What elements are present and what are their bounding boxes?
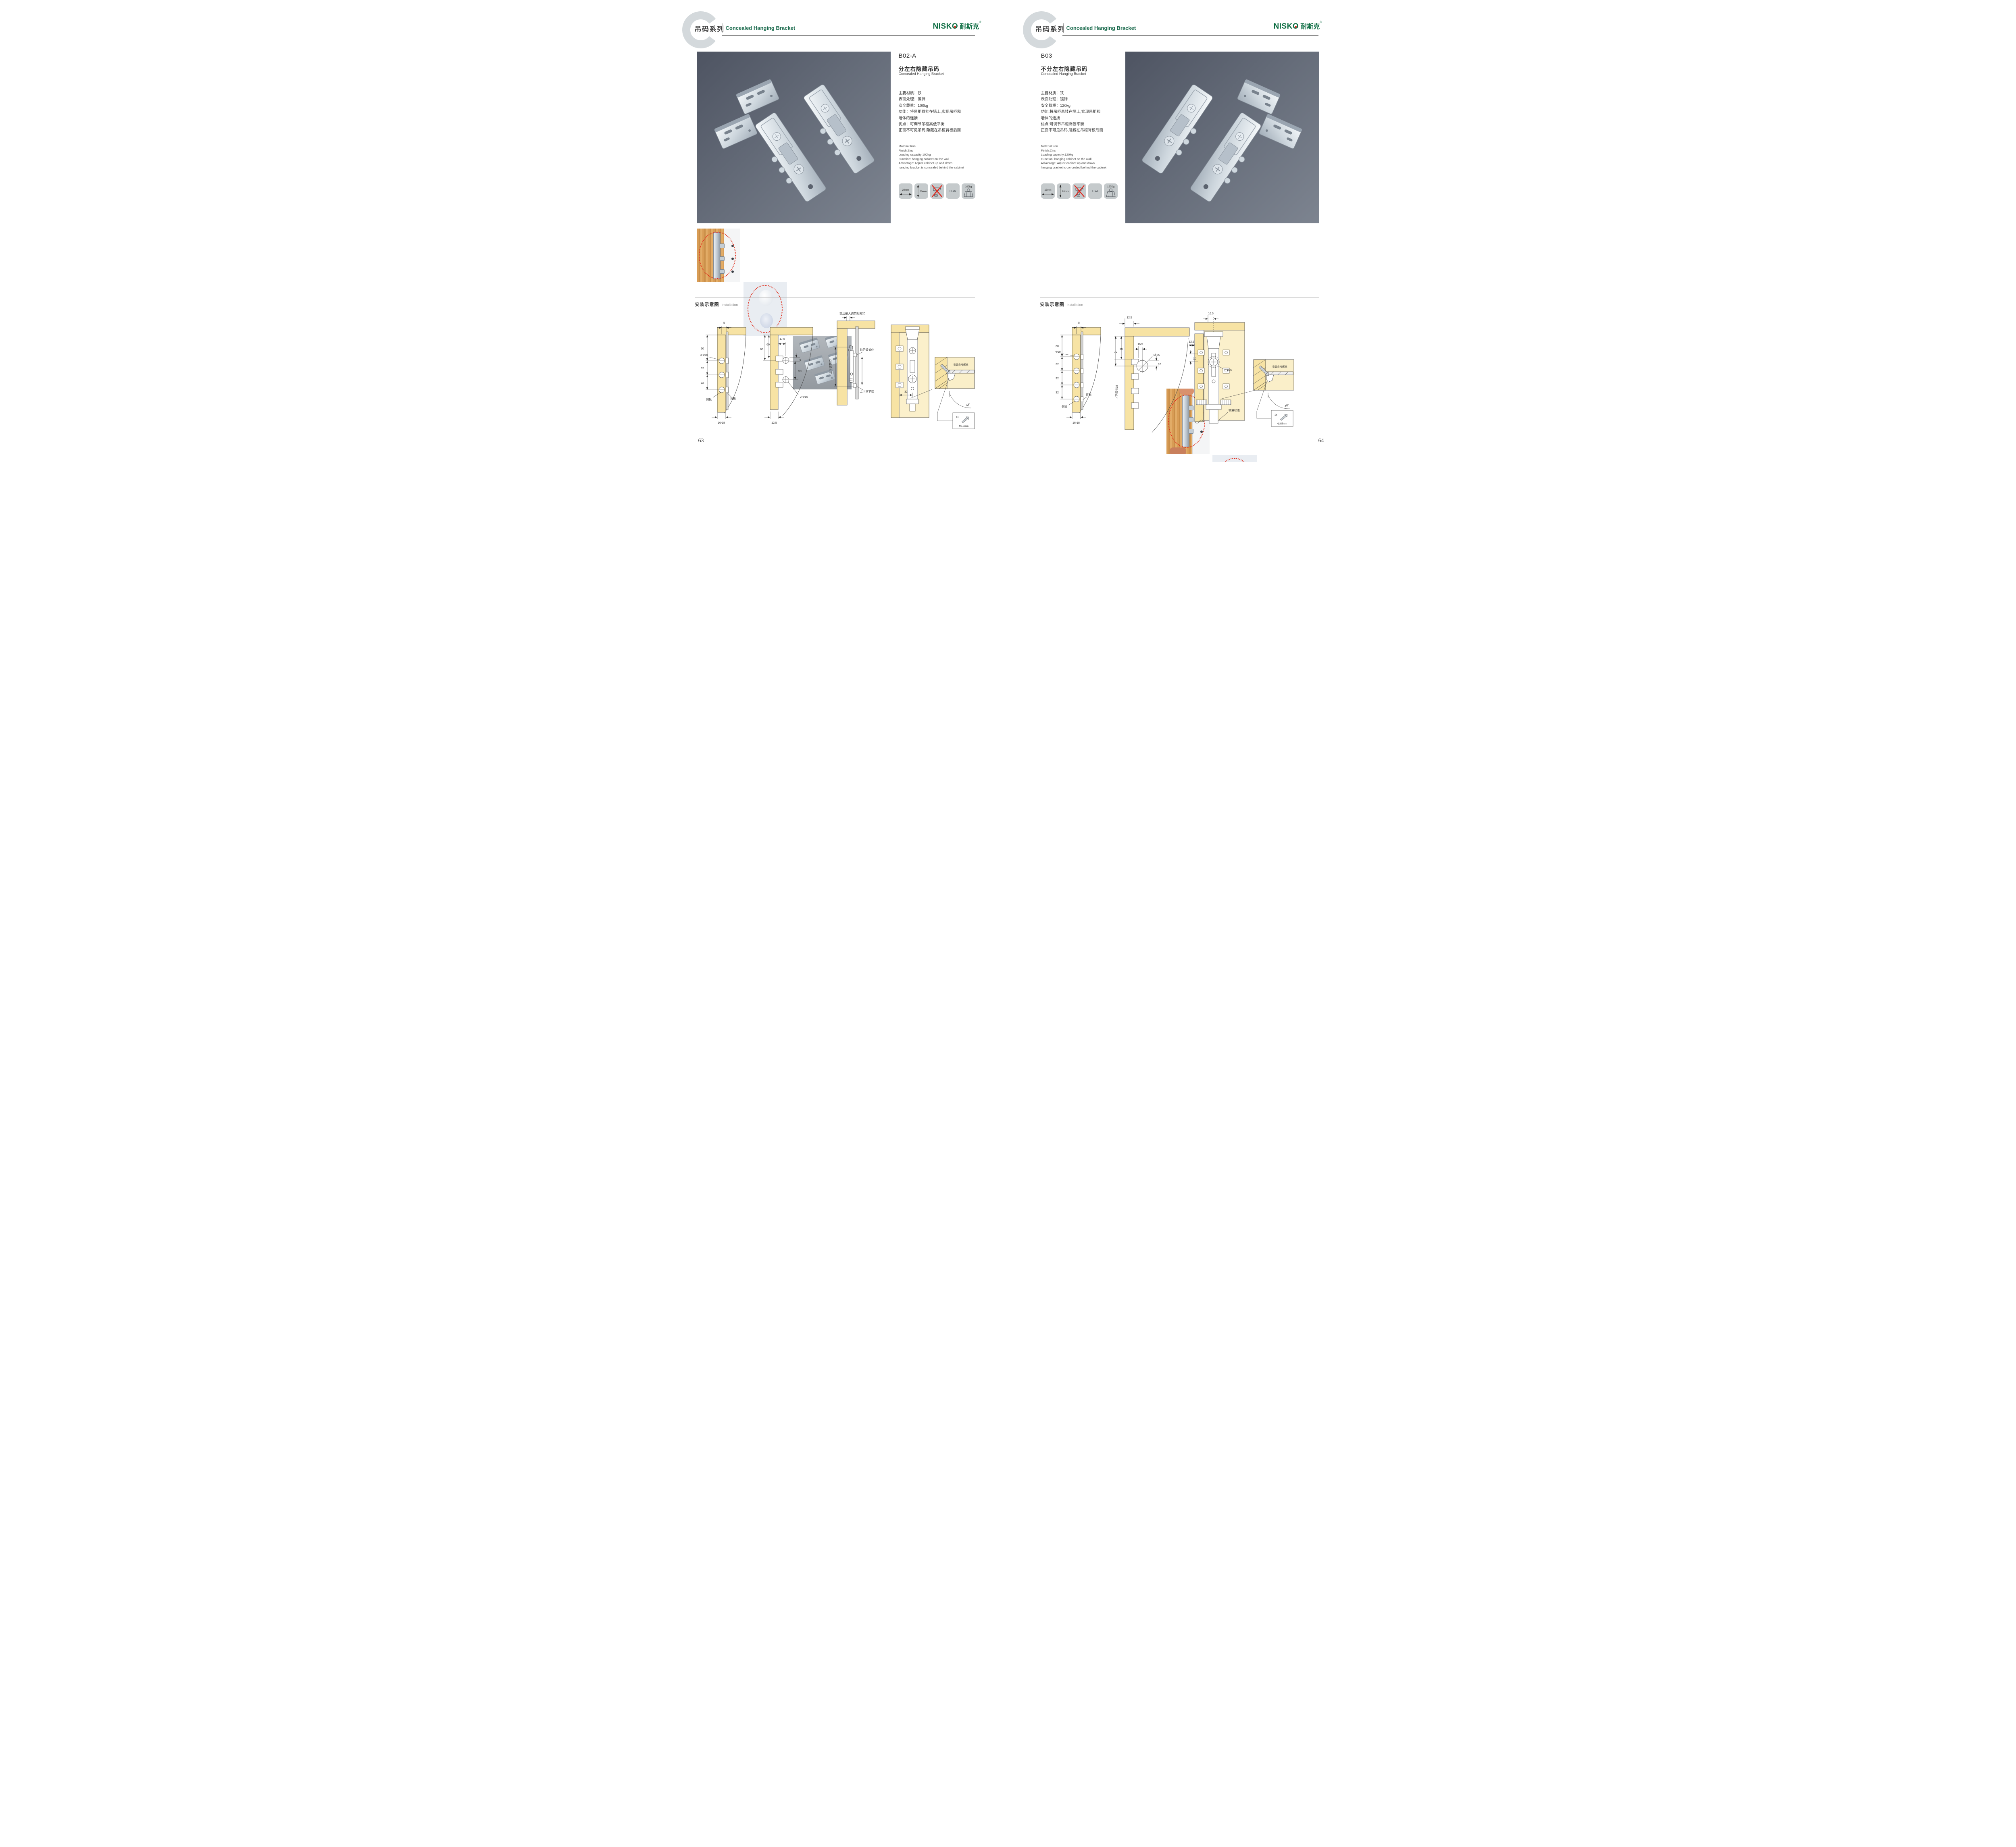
specs-en: Material:Iron Finish:Zinc Loading capaci… <box>1041 144 1107 170</box>
diagram-bracket-front-view: 16.5 12.5 10 ø25 锁紧状态 <box>1188 310 1259 439</box>
dim-label: 12.5 <box>1189 341 1194 343</box>
no-drill-icon <box>1073 183 1086 199</box>
dim-label: 10 <box>1158 363 1161 366</box>
spec-line: 表面处理：镀锌 <box>899 96 961 102</box>
dim-label: 32 <box>1056 363 1059 366</box>
spec-line: Finish:Zinc <box>899 149 964 153</box>
series-title-cn: 吊码系列 <box>1035 23 1065 33</box>
series-title-cn: 吊码系列 <box>695 23 725 33</box>
page-number-right: 64 <box>1318 438 1324 444</box>
angle-label: 45° <box>1284 404 1289 408</box>
product-title-en: Concealed Hanging Bracket <box>1041 72 1086 76</box>
page-number-left: 63 <box>698 438 704 444</box>
part-label: 侧板 <box>706 397 712 401</box>
spec-line: Advantage: Adjust cabinet up and down <box>1041 161 1107 166</box>
dim-label: 32 <box>1056 391 1059 394</box>
svg-text:100kg: 100kg <box>965 185 972 188</box>
diagram-side-panel-drilling: 5 60 3-Φ10 32 32 侧板 背板 16-18 <box>699 316 752 425</box>
svg-text:LGA: LGA <box>949 189 956 193</box>
spec-line: hanging bracket is concealed behind the … <box>899 166 964 170</box>
panel-height-icon: 18mm <box>1057 183 1070 199</box>
spec-line: 优点:可调节吊柜高低平衡 <box>1041 121 1104 127</box>
dim-label: 上下调节18 <box>1115 385 1118 399</box>
dim-label: 16.5 <box>1208 312 1214 315</box>
label-up-down-adjust: 上下调节位 <box>860 389 874 393</box>
dim-label: 60 <box>1056 345 1059 348</box>
spec-line: Function: hanging cabinet on the wall <box>1041 157 1107 162</box>
spec-line: Function: hanging cabinet on the wall <box>899 157 964 162</box>
diagram-back-panel-drilling: 17.5 65 60 5 50 2-Φ15 12.5 <box>760 316 822 426</box>
product-code: B03 <box>1041 52 1052 59</box>
qty-label: 1x <box>1275 414 1277 416</box>
dim-label: 32 <box>701 367 704 370</box>
dim-label: 70 <box>1114 351 1117 354</box>
thumb-installed-on-wood <box>697 229 740 282</box>
dim-label: 60 <box>766 343 770 346</box>
dim-label: 16-18 <box>1073 422 1080 424</box>
specs-cn: 主要材质：铁 表面处理：镀锌 安全载重：120kg 功能:将吊柜悬挂在墙上,实现… <box>1041 90 1104 134</box>
spec-line: 墙体的连接 <box>899 115 961 121</box>
series-title-en: Concealed Hanging Bracket <box>726 25 796 31</box>
brand-name-latin: NISK <box>933 22 952 31</box>
load-capacity-icon: 120Kg <box>1104 183 1118 199</box>
dim-label: 上下调节20 <box>829 360 832 374</box>
diagram-side-panel-drilling: 5 60 Φ10 32 32 32 背板 侧板 16-18 <box>1054 316 1106 425</box>
diagram-adjustment-side-view: 前后最大调节距离20 上下调节20 前后调节位 上下调节位 <box>827 310 878 409</box>
spec-line: 安全载重：100kg <box>899 103 961 109</box>
product-photo-b02a <box>697 52 891 223</box>
diagram-bracket-front-view: 32 <box>888 322 932 431</box>
dim-label: 16-18 <box>718 422 725 424</box>
dim-label: 10 <box>1193 358 1196 360</box>
installation-divider <box>1040 297 1319 297</box>
screw-instruction-label: 安装自攻螺丝 <box>953 363 968 366</box>
product-title-cn: 不分左右隐藏吊码 <box>1041 64 1088 73</box>
product-title-en: Concealed Hanging Bracket <box>899 72 944 76</box>
spec-line: 正面不可见吊码,隐藏在吊柜背板后面 <box>899 127 961 133</box>
thumb-concealed-back-panel <box>1212 455 1257 462</box>
dim-label: 50 <box>798 370 802 373</box>
spec-line: Loading capacity:100kg <box>899 153 964 157</box>
spec-line: 主要材质：铁 <box>899 90 961 96</box>
spec-line: Material:Iron <box>1041 144 1107 149</box>
diagram-screw-detail: 安装自攻螺丝 45° 1x Φ3.5mm <box>1252 358 1300 427</box>
lga-icon: LGA <box>1088 183 1102 199</box>
diagram-back-panel-drilling: 12.5 70 60 16.5 Ø 25 10 上下调节18 <box>1114 314 1190 435</box>
svg-text:18mm: 18mm <box>1062 190 1068 193</box>
spec-line: 表面处理：镀锌 <box>1041 96 1104 102</box>
spec-line: 主要材质：铁 <box>1041 90 1104 96</box>
brand-logo: NISKO耐斯克® <box>1274 21 1322 31</box>
dim-label: 12.5 <box>771 422 777 424</box>
part-label: 背板 <box>730 397 736 400</box>
series-title-en: Concealed Hanging Bracket <box>1066 25 1136 31</box>
product-code: B02-A <box>899 52 916 59</box>
spec-line: Advantage: Adjust cabinet up and down <box>899 161 964 166</box>
header-rule <box>722 35 975 36</box>
spec-line: 墙体的连接 <box>1041 115 1104 121</box>
product-photo-illustration <box>1125 52 1319 223</box>
installation-title: 安装示意图Installation <box>695 301 738 308</box>
dim-label: 5 <box>800 359 801 362</box>
dim-label: 60 <box>701 347 704 350</box>
panel-width-icon: 20mm <box>899 183 912 199</box>
load-capacity-icon: 100kg <box>962 183 975 199</box>
spec-line: 安全载重：120kg <box>1041 103 1104 109</box>
brand-logo: NISKO耐斯克® <box>933 21 981 31</box>
dim-label: ø25 <box>1227 369 1232 372</box>
panel-height-icon: 20mm <box>914 183 928 199</box>
dim-label: 32 <box>1056 377 1059 380</box>
screw-size-label: Φ3.5mm <box>959 425 968 428</box>
svg-text:20mm: 20mm <box>919 190 926 193</box>
no-drill-icon <box>930 183 944 199</box>
part-label: 侧板 <box>1062 405 1067 408</box>
spec-line: 功能：将吊柜悬挂在墙上,实现吊柜和 <box>899 109 961 115</box>
qty-label: 1x <box>956 416 959 419</box>
dim-label: 32 <box>904 391 908 393</box>
product-photo-illustration <box>697 52 891 223</box>
dim-label: 17.5 <box>779 338 785 341</box>
lock-state-label: 锁紧状态 <box>1229 408 1240 412</box>
product-photo-b03 <box>1125 52 1319 223</box>
dim-label: 5 <box>723 322 725 324</box>
svg-text:15mm: 15mm <box>1044 189 1051 191</box>
diagram-screw-detail: 安装自攻螺丝 45° 1x Φ3.5mm <box>934 356 977 430</box>
dim-label: Φ10 <box>1055 351 1060 354</box>
dim-label: Ø 25 <box>1154 354 1160 357</box>
spec-line: Finish:Zinc <box>1041 149 1107 153</box>
brand-name-cn: 耐斯克 <box>960 23 979 30</box>
spec-line: hanging bracket is concealed behind the … <box>1041 166 1107 170</box>
svg-text:120Kg: 120Kg <box>1107 185 1114 188</box>
screw-instruction-label: 安装自攻螺丝 <box>1272 365 1287 368</box>
feature-icons-row: 20mm 20mm LGA <box>899 183 975 199</box>
svg-text:LGA: LGA <box>1091 189 1098 193</box>
header-divider <box>1063 23 1064 33</box>
header-rule <box>1062 35 1318 36</box>
spec-line: Material:Iron <box>899 144 964 149</box>
spec-line: 正面不可见吊码,隐藏在吊柜背板后面 <box>1041 127 1104 133</box>
spec-line: Loading capacity:120kg <box>1041 153 1107 157</box>
svg-text:20mm: 20mm <box>902 189 909 191</box>
angle-label: 45° <box>966 403 971 407</box>
dim-label: 5 <box>1078 322 1080 324</box>
spec-line: 优点：可调节吊柜高低平衡 <box>899 121 961 127</box>
header-divider <box>723 23 723 33</box>
lga-icon: LGA <box>946 183 960 199</box>
product-title-cn: 分左右隐藏吊码 <box>899 64 940 73</box>
dim-label: 前后最大调节距离20 <box>839 312 865 315</box>
panel-width-icon: 15mm <box>1041 183 1055 199</box>
dim-label: 65 <box>760 348 763 351</box>
dim-label: 60 <box>1120 348 1123 351</box>
part-label: 背板 <box>1086 393 1091 396</box>
dim-label: 16.5 <box>1137 343 1143 346</box>
label-front-back-adjust: 前后调节位 <box>860 348 874 352</box>
catalog-spread: 吊码系列 Concealed Hanging Bracket NISKO耐斯克®… <box>670 0 1346 462</box>
dim-label: 12.5 <box>1127 316 1132 319</box>
registered-mark: ® <box>979 21 981 24</box>
installation-title: 安装示意图Installation <box>1040 301 1083 308</box>
dim-label: 2-Φ15 <box>800 396 808 399</box>
screw-size-label: Φ3.5mm <box>1277 422 1287 425</box>
dim-label: 3-Φ10 <box>700 354 708 357</box>
dim-label: 32 <box>701 382 704 385</box>
specs-en: Material:Iron Finish:Zinc Loading capaci… <box>899 144 964 170</box>
spec-line: 功能:将吊柜悬挂在墙上,实现吊柜和 <box>1041 109 1104 115</box>
feature-icons-row: 15mm 18mm LGA <box>1041 183 1118 199</box>
specs-cn: 主要材质：铁 表面处理：镀锌 安全载重：100kg 功能：将吊柜悬挂在墙上,实现… <box>899 90 961 134</box>
installation-divider <box>695 297 975 297</box>
